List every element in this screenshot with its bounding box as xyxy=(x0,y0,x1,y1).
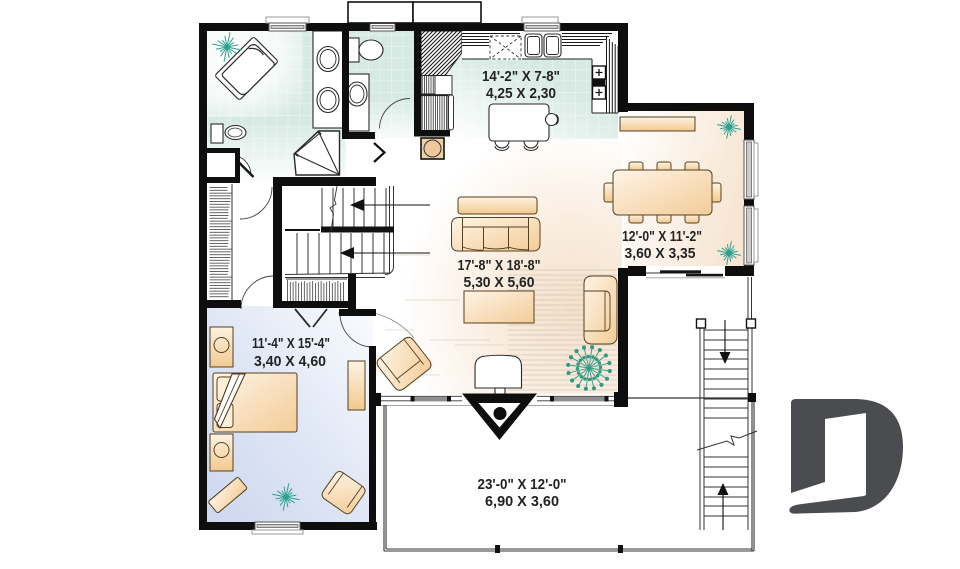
svg-text:3,60 X 3,35: 3,60 X 3,35 xyxy=(625,246,696,262)
svg-text:3,40 X 4,60: 3,40 X 4,60 xyxy=(254,354,326,370)
svg-text:12'-0" X 11'-2": 12'-0" X 11'-2" xyxy=(622,229,702,245)
svg-text:14'-2" X 7-8": 14'-2" X 7-8" xyxy=(482,69,560,85)
svg-text:5,30 X 5,60: 5,30 X 5,60 xyxy=(464,275,535,291)
svg-text:23'-0" X 12'-0": 23'-0" X 12'-0" xyxy=(478,477,567,493)
svg-text:6,90 X 3,60: 6,90 X 3,60 xyxy=(485,494,559,510)
svg-text:4,25 X 2,30: 4,25 X 2,30 xyxy=(486,86,556,102)
svg-text:11'-4" X 15'-4": 11'-4" X 15'-4" xyxy=(252,336,330,352)
svg-text:17'-8" X 18'-8": 17'-8" X 18'-8" xyxy=(458,258,541,274)
